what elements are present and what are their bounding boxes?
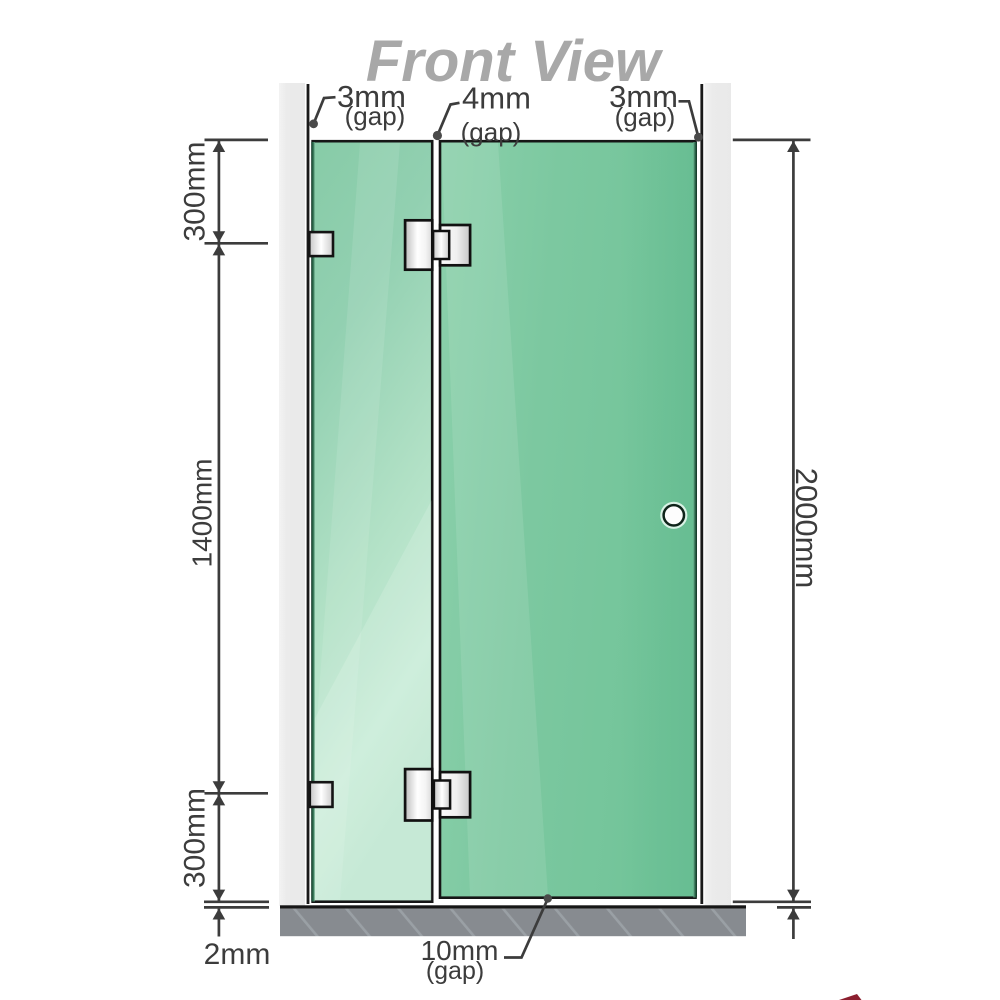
- svg-text:(gap): (gap): [461, 117, 522, 147]
- svg-text:300mm: 300mm: [179, 141, 212, 241]
- svg-text:300mm: 300mm: [179, 788, 212, 888]
- svg-text:(gap): (gap): [615, 102, 676, 132]
- svg-text:1400mm: 1400mm: [187, 459, 218, 568]
- svg-text:4mm: 4mm: [462, 81, 531, 116]
- svg-text:2mm: 2mm: [204, 938, 271, 971]
- svg-text:(gap): (gap): [345, 101, 406, 131]
- svg-text:2000mm: 2000mm: [789, 468, 824, 589]
- svg-text:(gap): (gap): [426, 957, 484, 985]
